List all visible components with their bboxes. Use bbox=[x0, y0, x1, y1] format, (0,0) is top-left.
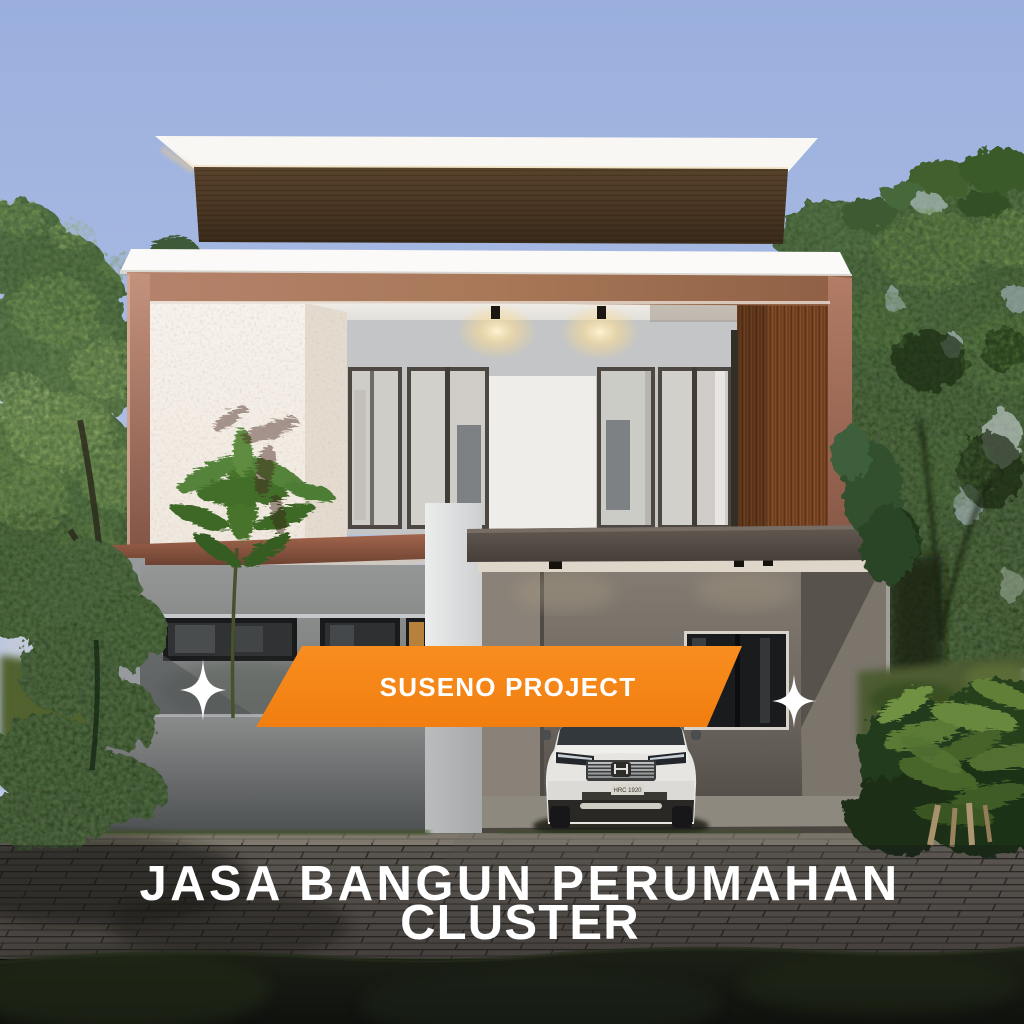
svg-text:HRC 1920: HRC 1920 bbox=[613, 788, 642, 794]
svg-text:SUSENO PROJECT: SUSENO PROJECT bbox=[380, 672, 637, 702]
svg-text:CLUSTER: CLUSTER bbox=[400, 896, 640, 950]
